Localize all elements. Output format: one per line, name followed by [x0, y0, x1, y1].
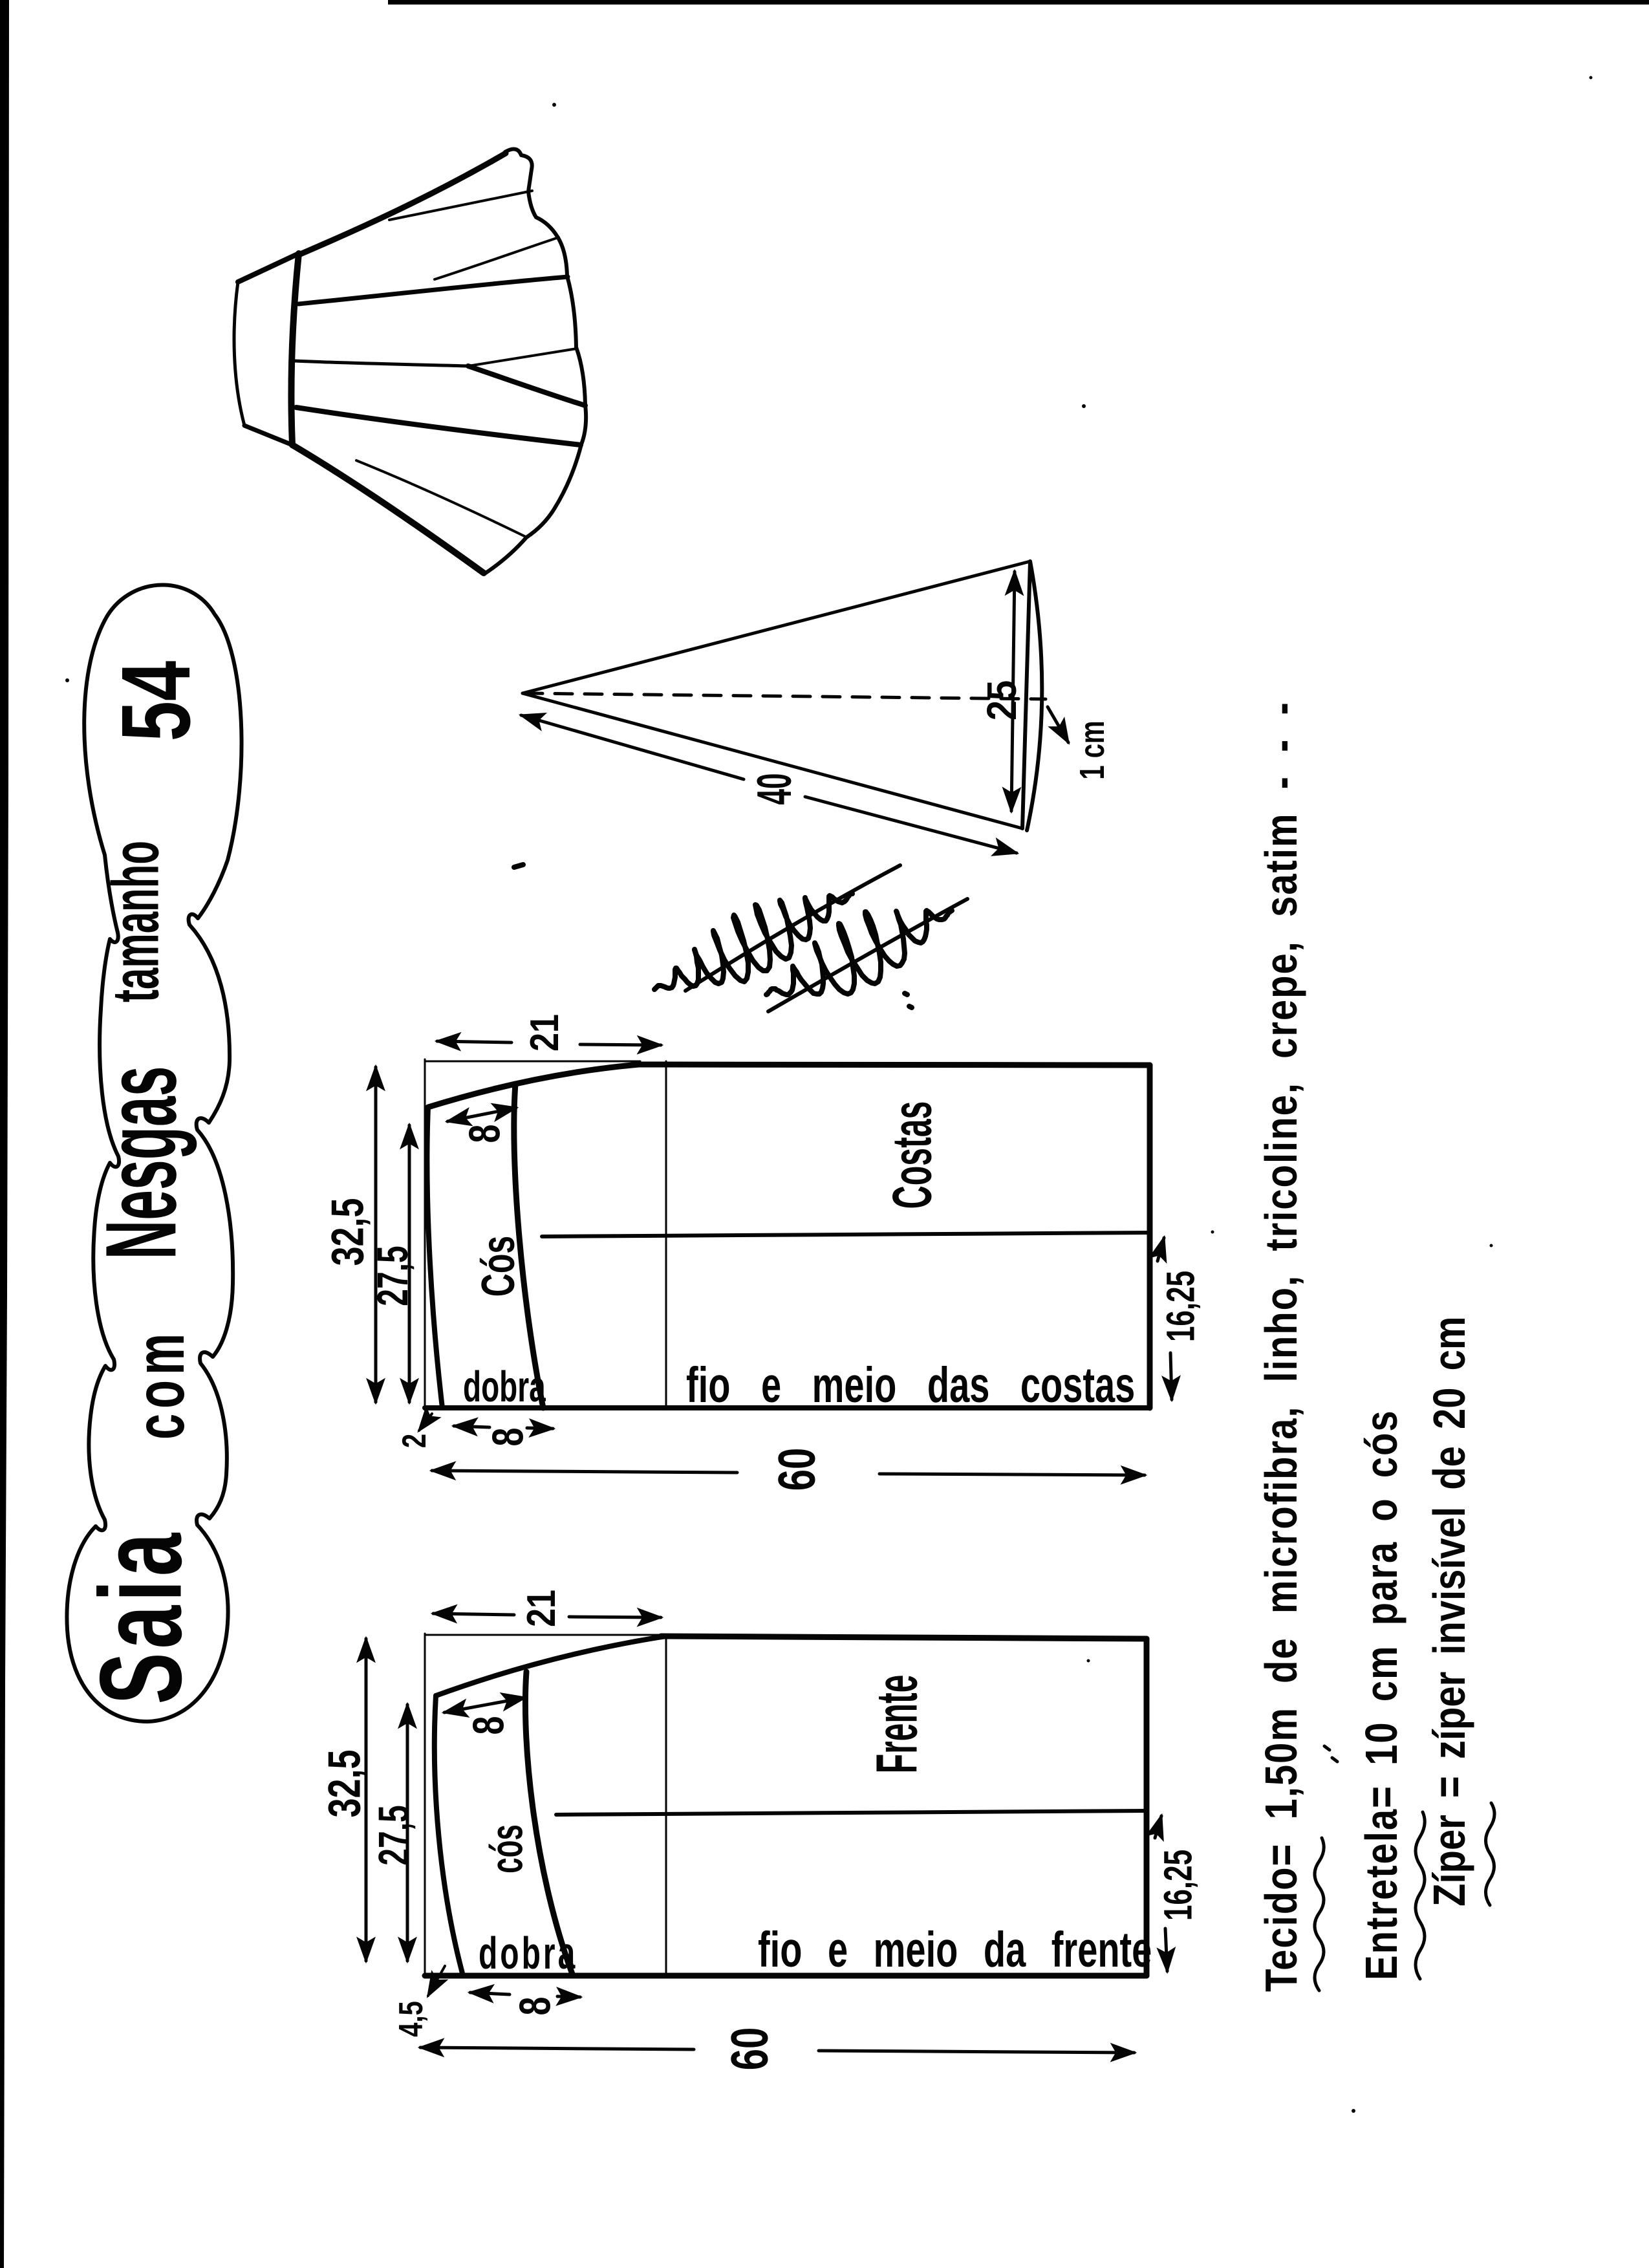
svg-text:40: 40 — [748, 773, 802, 805]
svg-text:8: 8 — [483, 1428, 532, 1447]
svg-text:16,25: 16,25 — [1156, 1850, 1200, 1921]
svg-text:8: 8 — [460, 1125, 509, 1143]
svg-text:fio e meio da frente: fio e meio da frente — [758, 1922, 1152, 1978]
svg-text:Entretela= 10 cm para o có: Entretela= 10 cm para o cós — [1356, 1409, 1406, 1980]
svg-text:21: 21 — [522, 1014, 567, 1052]
svg-text:60: 60 — [720, 2027, 779, 2071]
svg-text:Saia: Saia — [76, 1529, 206, 1705]
svg-text:1 cm: 1 cm — [1073, 720, 1112, 779]
svg-text:27,5: 27,5 — [369, 1246, 417, 1306]
svg-text:25: 25 — [978, 680, 1025, 720]
svg-text:2: 2 — [395, 1434, 433, 1448]
svg-text:cós: cós — [482, 1824, 532, 1874]
svg-text:Frente: Frente — [865, 1675, 929, 1774]
svg-text:dobra: dobra — [479, 1928, 577, 1978]
svg-text:32,5: 32,5 — [323, 1198, 373, 1266]
svg-text:tamanho: tamanho — [98, 841, 173, 1002]
svg-text:32,5: 32,5 — [319, 1749, 370, 1817]
svg-text:dobra: dobra — [463, 1363, 546, 1412]
svg-text:Cós: Cós — [473, 1236, 524, 1297]
svg-text:fio e meio das costas: fio e meio das costas — [686, 1357, 1135, 1413]
svg-text:16,25: 16,25 — [1159, 1271, 1203, 1342]
svg-text:21: 21 — [519, 1590, 564, 1627]
svg-text:Costas: Costas — [881, 1101, 943, 1209]
svg-text:com: com — [122, 1328, 199, 1440]
svg-text:8: 8 — [464, 1716, 513, 1735]
svg-text:Nesgas: Nesgas — [85, 1066, 197, 1260]
svg-text:Zíper = zíper invisível de 20: Zíper = zíper invisível de 20 cm — [1424, 1317, 1474, 1906]
svg-text:27,5: 27,5 — [370, 1805, 418, 1865]
svg-text:Tecido= 1,50m de microfibra,: Tecido= 1,50m de microfibra, linho, tric… — [1256, 701, 1306, 1992]
svg-text:8: 8 — [510, 1997, 559, 2016]
svg-text:4,5: 4,5 — [392, 2001, 429, 2037]
svg-text:54: 54 — [102, 661, 211, 742]
svg-text:60: 60 — [768, 1448, 826, 1491]
